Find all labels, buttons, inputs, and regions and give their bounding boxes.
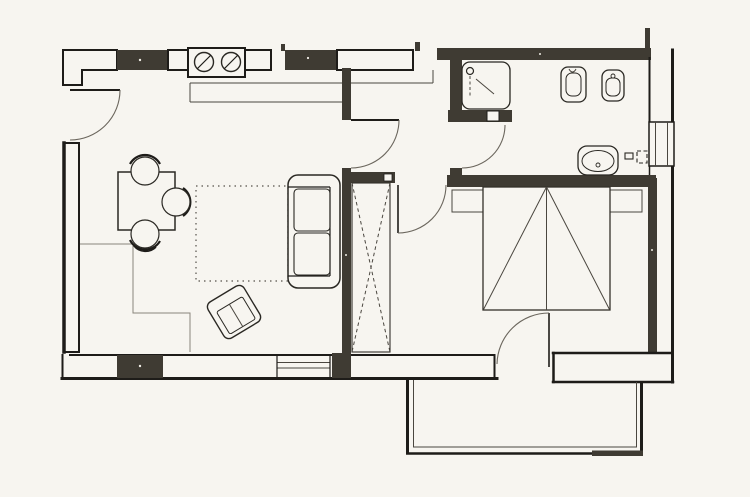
scan-speck	[539, 53, 541, 55]
wall-shower-bottom	[448, 110, 512, 122]
wall-kitchen-stub	[342, 68, 351, 120]
scan-speck	[139, 59, 141, 61]
chair	[130, 220, 160, 251]
wall-bathroom-top	[437, 48, 651, 60]
wall-left-window-strip	[64, 143, 79, 352]
cooktop-unit	[188, 48, 245, 77]
wall-pier	[285, 50, 337, 70]
shower-wall-notch	[487, 111, 499, 121]
wall-tick	[645, 28, 650, 49]
chair	[130, 155, 160, 185]
closet-bar-notch	[384, 174, 392, 181]
sofa	[288, 175, 340, 288]
wall-segment	[168, 50, 190, 70]
wall-pier	[117, 50, 168, 70]
washbasin	[578, 146, 618, 175]
wall-tick	[281, 44, 285, 51]
wall-segment	[245, 50, 271, 70]
kitchen	[188, 48, 245, 77]
wall-stub	[450, 168, 462, 176]
scan-speck	[139, 365, 141, 367]
chair	[162, 188, 190, 216]
shower-tray	[462, 62, 510, 109]
wall-tick	[415, 42, 420, 51]
wall-pier	[332, 353, 351, 378]
bathroom-window	[649, 122, 674, 166]
balcony-railing-pier	[592, 451, 643, 457]
scan-speck	[307, 57, 309, 59]
wall-bed-bath-divider	[447, 175, 656, 187]
scan-speck	[651, 249, 653, 251]
wall-shower-left	[450, 57, 462, 111]
floor-plan	[0, 0, 750, 497]
floor-plan-page	[0, 0, 750, 497]
wall-bedroom-right	[648, 178, 657, 353]
scan-speck	[345, 254, 347, 256]
toilet	[561, 67, 586, 102]
bidet	[602, 70, 624, 101]
wall-segment	[337, 50, 413, 70]
wall-closet	[342, 168, 351, 353]
